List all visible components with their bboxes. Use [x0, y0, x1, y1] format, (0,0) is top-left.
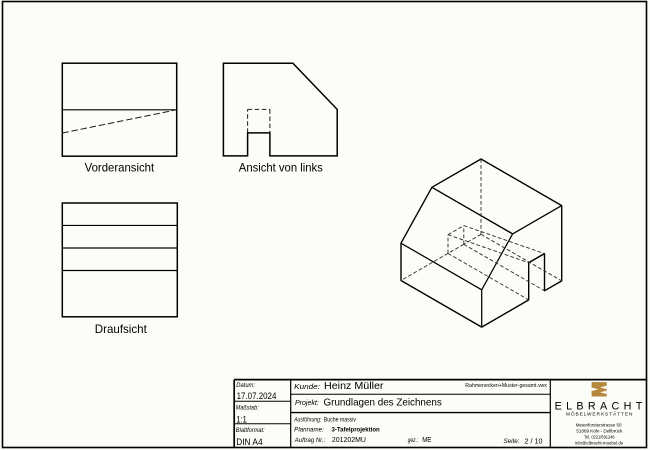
svg-text:Projekt:: Projekt: [295, 398, 319, 407]
svg-text:Rahmenecken+Muster-gesamt.vwx: Rahmenecken+Muster-gesamt.vwx [465, 383, 547, 389]
svg-text:Blattformat:: Blattformat: [236, 427, 265, 434]
svg-text:201202MU: 201202MU [332, 437, 366, 444]
svg-text:Kunde:: Kunde: [294, 382, 320, 391]
svg-text:Auftrag Nr.:: Auftrag Nr.: [294, 437, 326, 444]
svg-text:Buche massiv: Buche massiv [324, 416, 357, 423]
svg-text:info@elbracht-moebel.de: info@elbracht-moebel.de [575, 440, 623, 446]
svg-text:Tel. 0221/691246: Tel. 0221/691246 [584, 434, 615, 440]
svg-text:ME: ME [422, 437, 432, 444]
svg-text:Ausführung:: Ausführung: [293, 416, 321, 423]
svg-text:Heinz Müller: Heinz Müller [324, 380, 384, 392]
svg-text:2 / 10: 2 / 10 [525, 436, 543, 445]
svg-text:DIN A4: DIN A4 [236, 437, 262, 447]
svg-text:MÖBELWERKSTÄTTEN: MÖBELWERKSTÄTTEN [566, 411, 633, 418]
svg-text:Grundlagen des Zeichnens: Grundlagen des Zeichnens [324, 396, 442, 408]
svg-text:3-Tafelprojektion: 3-Tafelprojektion [332, 427, 380, 434]
svg-text:gez.:: gez.: [408, 437, 419, 444]
svg-text:1:1: 1:1 [236, 414, 246, 424]
svg-text:Draufsicht: Draufsicht [95, 322, 148, 336]
svg-text:Seite:: Seite: [504, 438, 520, 445]
svg-text:Maßstab:: Maßstab: [236, 404, 259, 411]
svg-text:Meienforsterstrasse 50: Meienforsterstrasse 50 [576, 422, 622, 428]
svg-text:Datum:: Datum: [236, 382, 255, 389]
svg-text:Planname:: Planname: [294, 427, 324, 434]
svg-text:ELBRACHT: ELBRACHT [555, 401, 647, 413]
svg-text:Ansicht von links: Ansicht von links [239, 160, 323, 174]
svg-text:Vorderansicht: Vorderansicht [85, 160, 155, 174]
svg-text:51069 Köln - Dellbrück: 51069 Köln - Dellbrück [576, 428, 623, 434]
svg-text:17.07.2024: 17.07.2024 [237, 391, 277, 401]
